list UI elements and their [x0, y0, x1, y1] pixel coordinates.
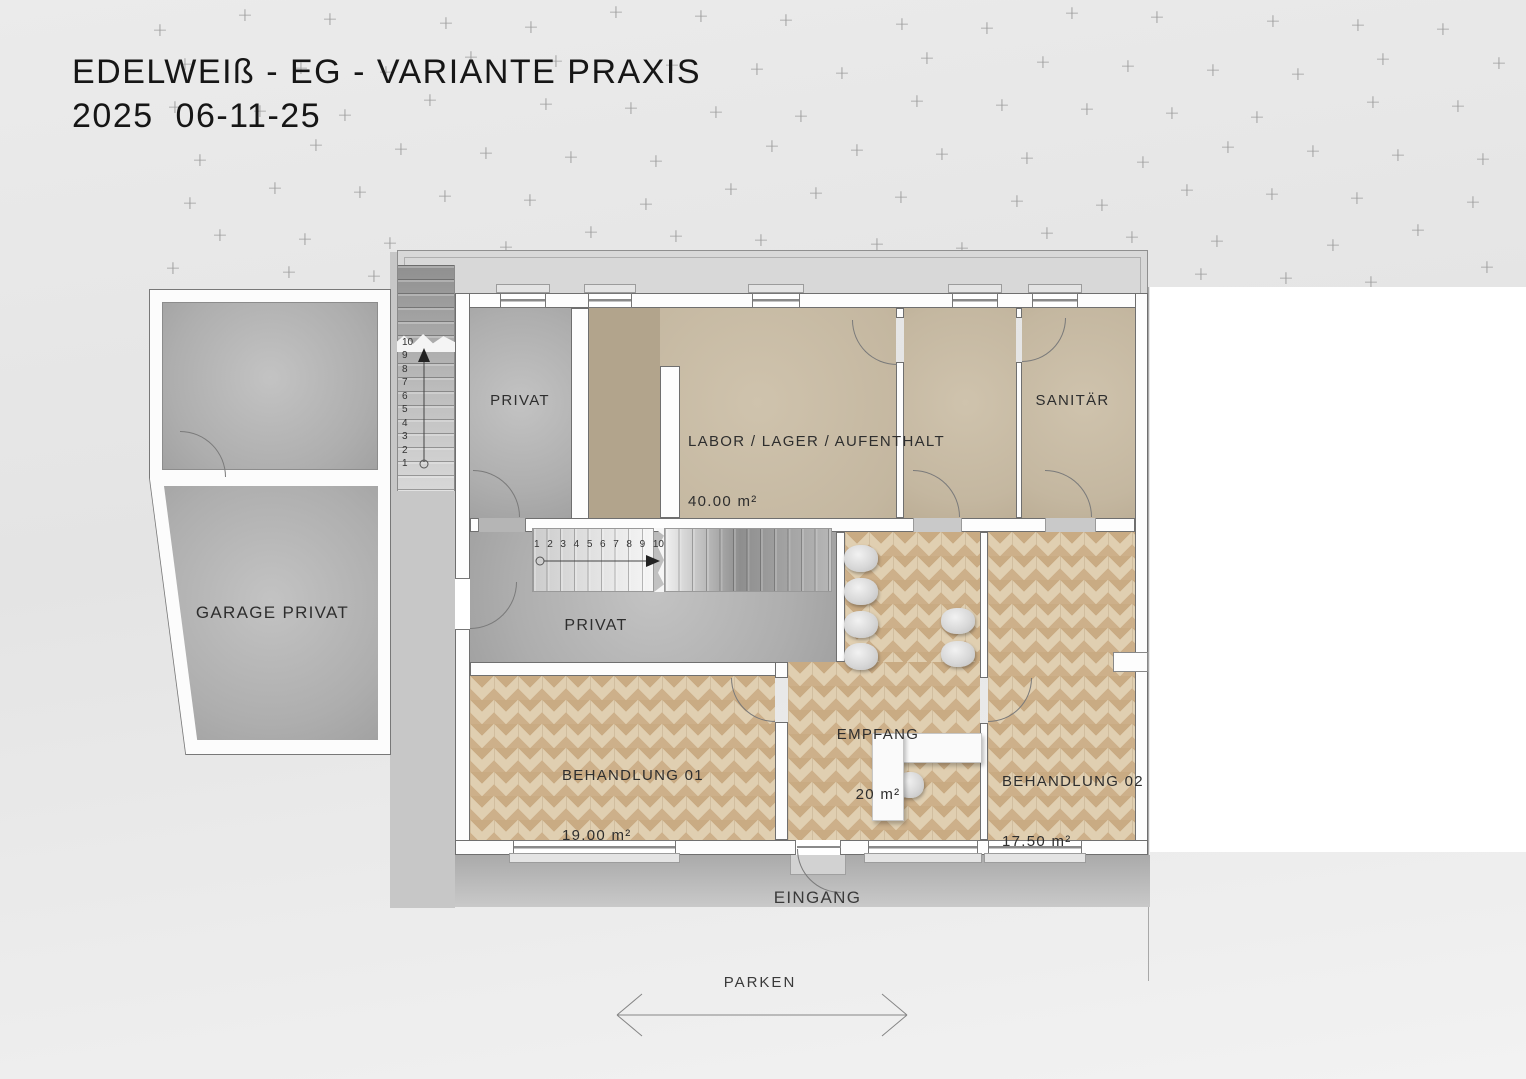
exterior-stair-direction-arrow: [412, 346, 436, 474]
room-flur-label: PRIVAT: [531, 615, 661, 637]
survey-cross-icon: +: [1124, 226, 1140, 248]
survey-cross-icon: +: [1039, 222, 1055, 244]
survey-cross-icon: +: [1265, 10, 1281, 32]
survey-cross-icon: +: [281, 261, 297, 283]
survey-cross-icon: +: [1325, 234, 1341, 256]
survey-cross-icon: +: [1465, 191, 1481, 213]
waiting-chair: [844, 611, 878, 638]
waiting-chair: [941, 641, 975, 667]
survey-cross-icon: +: [563, 146, 579, 168]
waiting-chair: [941, 608, 975, 634]
survey-cross-icon: +: [753, 229, 769, 251]
survey-cross-icon: +: [322, 8, 338, 30]
survey-cross-icon: +: [1305, 140, 1321, 162]
survey-cross-icon: +: [764, 135, 780, 157]
entrance-door-leaf: [797, 846, 841, 848]
survey-cross-icon: +: [1349, 187, 1365, 209]
survey-cross-icon: +: [393, 138, 409, 160]
survey-cross-icon: +: [165, 257, 181, 279]
survey-cross-icon: +: [1079, 98, 1095, 120]
wall-mid-sanitaer-a: [1016, 308, 1022, 318]
survey-cross-icon: +: [1164, 102, 1180, 124]
survey-cross-icon: +: [1220, 136, 1236, 158]
survey-cross-icon: +: [1290, 63, 1306, 85]
window-sill: [748, 284, 804, 293]
room-b02-label: BEHANDLUNG 02 17.50 m²: [1002, 731, 1144, 893]
room-labor-dark-zone: [589, 308, 660, 518]
window: [588, 293, 632, 308]
survey-cross-icon: +: [778, 9, 794, 31]
survey-cross-icon: +: [638, 193, 654, 215]
wall-exterior-left: [455, 293, 470, 855]
survey-cross-icon: +: [894, 13, 910, 35]
survey-cross-icon: +: [1205, 59, 1221, 81]
parken-double-arrow: [612, 990, 912, 1040]
plan-title: EDELWEIß - EG - VARIANTE PRAXIS: [72, 50, 701, 96]
window-sill: [864, 853, 982, 863]
room-labor-area: 40.00 m²: [688, 492, 945, 512]
survey-cross-icon: +: [297, 228, 313, 250]
window-sill: [584, 284, 636, 293]
survey-cross-icon: +: [893, 186, 909, 208]
room-b01-label: BEHANDLUNG 01 19.00 m²: [562, 725, 704, 887]
west-door-opening: [455, 578, 470, 630]
survey-cross-icon: +: [382, 232, 398, 254]
wall-privat-labor: [571, 308, 589, 532]
survey-cross-icon: +: [538, 93, 554, 115]
survey-cross-icon: +: [1435, 18, 1451, 40]
survey-cross-icon: +: [648, 150, 664, 172]
survey-cross-icon: +: [919, 47, 935, 69]
window: [752, 293, 800, 308]
survey-cross-icon: +: [366, 265, 382, 287]
interior-stair-numbers: 12 34 56 78 910: [534, 539, 664, 550]
eingang-label: EINGANG: [745, 887, 890, 910]
survey-cross-icon: +: [1019, 147, 1035, 169]
floor-plan-canvas: ++++++++++++++++++++++++++++++++++++++++…: [0, 0, 1526, 1079]
survey-cross-icon: +: [808, 182, 824, 204]
room-empfang-area: 20 m²: [808, 785, 948, 805]
survey-cross-icon: +: [583, 221, 599, 243]
survey-cross-icon: +: [1264, 183, 1280, 205]
wall-mid-sanitaer-b: [1016, 362, 1022, 518]
survey-cross-icon: +: [1479, 256, 1495, 278]
survey-cross-icon: +: [1365, 91, 1381, 113]
survey-cross-icon: +: [267, 177, 283, 199]
plan-date: 2025 06-11-25: [72, 94, 321, 140]
wall-flur-b01: [470, 662, 788, 676]
window: [500, 293, 546, 308]
survey-cross-icon: +: [623, 97, 639, 119]
survey-cross-icon: +: [192, 149, 208, 171]
survey-cross-icon: +: [152, 19, 168, 41]
survey-cross-icon: +: [668, 225, 684, 247]
survey-cross-icon: +: [909, 90, 925, 112]
wall-b01-empfang-b: [775, 722, 788, 840]
survey-cross-icon: +: [749, 58, 765, 80]
survey-cross-icon: +: [182, 192, 198, 214]
room-empfang-name: EMPFANG: [808, 725, 948, 745]
survey-cross-icon: +: [1009, 190, 1025, 212]
pillar-labor: [660, 366, 680, 518]
privat-door-opening: [478, 518, 526, 532]
survey-cross-icon: +: [1135, 151, 1151, 173]
waiting-chair: [844, 643, 878, 670]
neighbor-parcel: [1150, 287, 1526, 852]
room-sanitaer-label: SANITÄR: [1005, 391, 1140, 411]
garage-room-label: GARAGE PRIVAT: [195, 602, 350, 625]
room-b01-area: 19.00 m²: [562, 826, 704, 846]
room-labor-label: LABOR / LAGER / AUFENTHALT 40.00 m²: [688, 391, 945, 553]
survey-cross-icon: +: [1193, 263, 1209, 285]
survey-cross-icon: +: [608, 1, 624, 23]
room-labor-name: LABOR / LAGER / AUFENTHALT: [688, 432, 945, 452]
survey-cross-icon: +: [793, 105, 809, 127]
sanitaer-threshold: [1045, 518, 1096, 532]
survey-cross-icon: +: [1350, 14, 1366, 36]
survey-cross-icon: +: [212, 224, 228, 246]
survey-cross-icon: +: [849, 139, 865, 161]
survey-cross-icon: +: [237, 4, 253, 26]
room-empfang-label: EMPFANG 20 m²: [808, 684, 948, 846]
room-privat-top-label: PRIVAT: [455, 391, 585, 411]
survey-cross-icon: +: [1120, 55, 1136, 77]
survey-cross-icon: +: [1064, 2, 1080, 24]
room-b02-area: 17.50 m²: [1002, 832, 1144, 852]
survey-cross-icon: +: [834, 62, 850, 84]
survey-cross-icon: +: [1179, 179, 1195, 201]
window-sill: [948, 284, 1002, 293]
survey-cross-icon: +: [1390, 144, 1406, 166]
wall-empfang-b02-a: [980, 532, 988, 678]
survey-cross-icon: +: [934, 143, 950, 165]
room-b02-name: BEHANDLUNG 02: [1002, 772, 1144, 792]
survey-cross-icon: +: [523, 16, 539, 38]
survey-cross-icon: +: [979, 17, 995, 39]
survey-cross-icon: +: [1094, 194, 1110, 216]
room-b01-name: BEHANDLUNG 01: [562, 766, 704, 786]
survey-cross-icon: +: [1475, 148, 1491, 170]
survey-cross-icon: +: [438, 12, 454, 34]
wall-labor-mid-a: [896, 308, 904, 318]
window-sill: [496, 284, 550, 293]
waiting-chair: [844, 578, 878, 605]
survey-cross-icon: +: [1450, 95, 1466, 117]
wall-niche-b02: [1113, 652, 1148, 672]
survey-cross-icon: +: [1410, 219, 1426, 241]
survey-cross-icon: +: [994, 94, 1010, 116]
survey-cross-icon: +: [723, 178, 739, 200]
survey-cross-icon: +: [1209, 230, 1225, 252]
survey-cross-icon: +: [437, 185, 453, 207]
window-sill: [1028, 284, 1082, 293]
survey-cross-icon: +: [1035, 51, 1051, 73]
interior-stair-direction-arrow: [534, 552, 664, 570]
survey-cross-icon: +: [1375, 48, 1391, 70]
survey-cross-icon: +: [337, 104, 353, 126]
wall-b01-empfang-a: [775, 662, 788, 678]
survey-cross-icon: +: [693, 5, 709, 27]
survey-cross-icon: +: [478, 142, 494, 164]
window: [1032, 293, 1078, 308]
survey-cross-icon: +: [708, 101, 724, 123]
window: [952, 293, 998, 308]
survey-cross-icon: +: [352, 181, 368, 203]
survey-cross-icon: +: [1149, 6, 1165, 28]
survey-cross-icon: +: [1278, 267, 1294, 289]
survey-cross-icon: +: [1491, 52, 1507, 74]
survey-cross-icon: +: [522, 189, 538, 211]
survey-cross-icon: +: [1249, 106, 1265, 128]
